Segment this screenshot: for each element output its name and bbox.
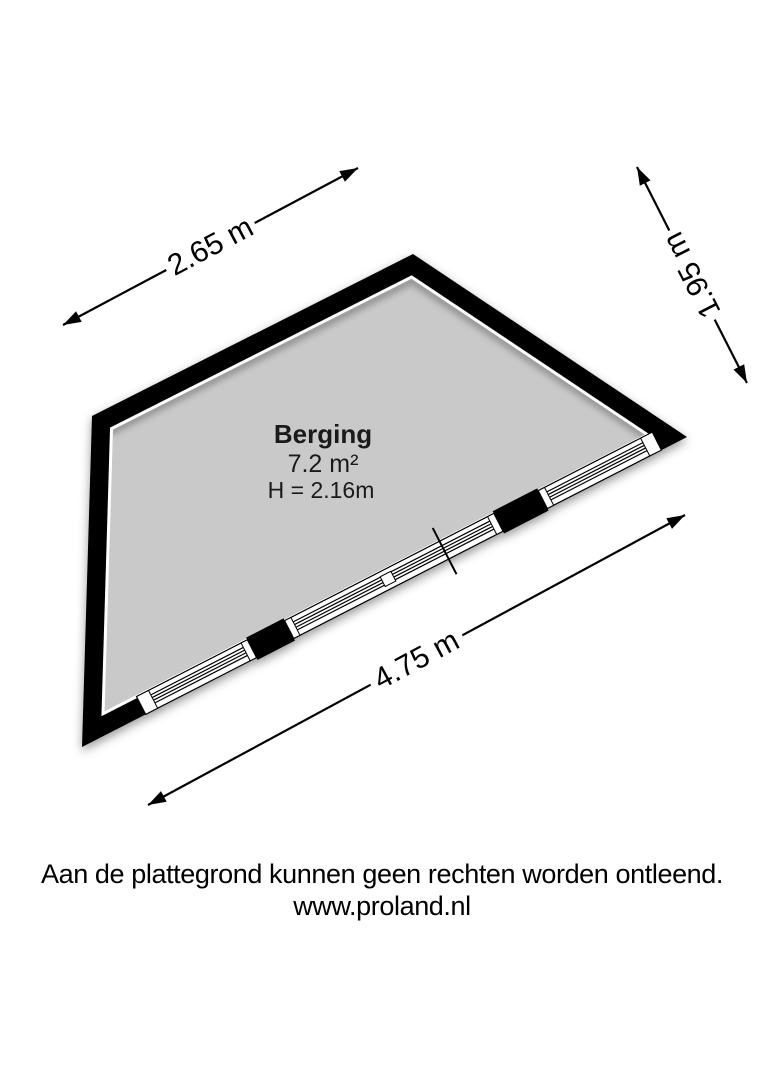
arrowhead xyxy=(632,164,651,185)
website-text: www.proland.nl xyxy=(0,890,764,922)
dimension-label-top-left: 2.65 m xyxy=(162,210,258,282)
arrowhead xyxy=(666,510,688,529)
arrowhead xyxy=(733,364,752,385)
room-area-label: 7.2 m² xyxy=(288,450,359,478)
arrowhead xyxy=(339,163,361,182)
disclaimer-text: Aan de plattegrond kunnen geen rechten w… xyxy=(0,858,764,890)
room-name-label: Berging xyxy=(274,419,372,449)
room-height-label: H = 2.16m xyxy=(268,477,375,503)
dimension-label-right: 1.95 m xyxy=(656,227,727,324)
footer: Aan de plattegrond kunnen geen rechten w… xyxy=(0,858,764,922)
floorplan-page: Berging 7.2 m² H = 2.16m 2.65 m 1.95 m 4… xyxy=(0,0,764,1080)
arrowhead xyxy=(145,791,167,810)
dimension-label-bottom: 4.75 m xyxy=(368,624,464,697)
arrowhead xyxy=(60,311,82,330)
